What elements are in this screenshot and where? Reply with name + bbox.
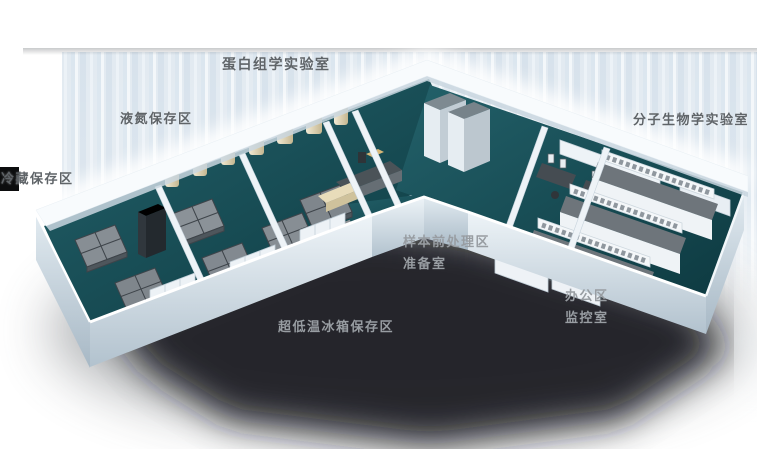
room-label-monitoring-room: 监控室 bbox=[565, 312, 609, 325]
room-label-molecular-biology: 分子生物学实验室 bbox=[633, 114, 749, 127]
dark-cabinet bbox=[138, 204, 166, 258]
room-label-cold-storage: 冷藏保存区 bbox=[1, 173, 74, 186]
proteomics-cabinets bbox=[424, 93, 490, 172]
room-label-ulf-freezer-storage: 超低温冰箱保存区 bbox=[278, 321, 394, 334]
room-label-office: 办公区 bbox=[565, 290, 609, 303]
lab-floorplan-render: 蛋白组学实验室 液氮保存区 冷藏保存区 分子生物学实验室 样本前处理区 准备室 … bbox=[0, 0, 757, 449]
room-label-proteomics-lab: 蛋白组学实验室 bbox=[222, 58, 331, 72]
room-label-sample-pretreatment: 样本前处理区 bbox=[403, 236, 490, 249]
room-label-liquid-nitrogen: 液氮保存区 bbox=[120, 113, 193, 126]
room-label-prep-room: 准备室 bbox=[403, 258, 447, 271]
floorplan-3d-graphic bbox=[0, 0, 757, 449]
wall-reflection-streak bbox=[734, 258, 757, 440]
top-shadow-line bbox=[23, 48, 757, 55]
